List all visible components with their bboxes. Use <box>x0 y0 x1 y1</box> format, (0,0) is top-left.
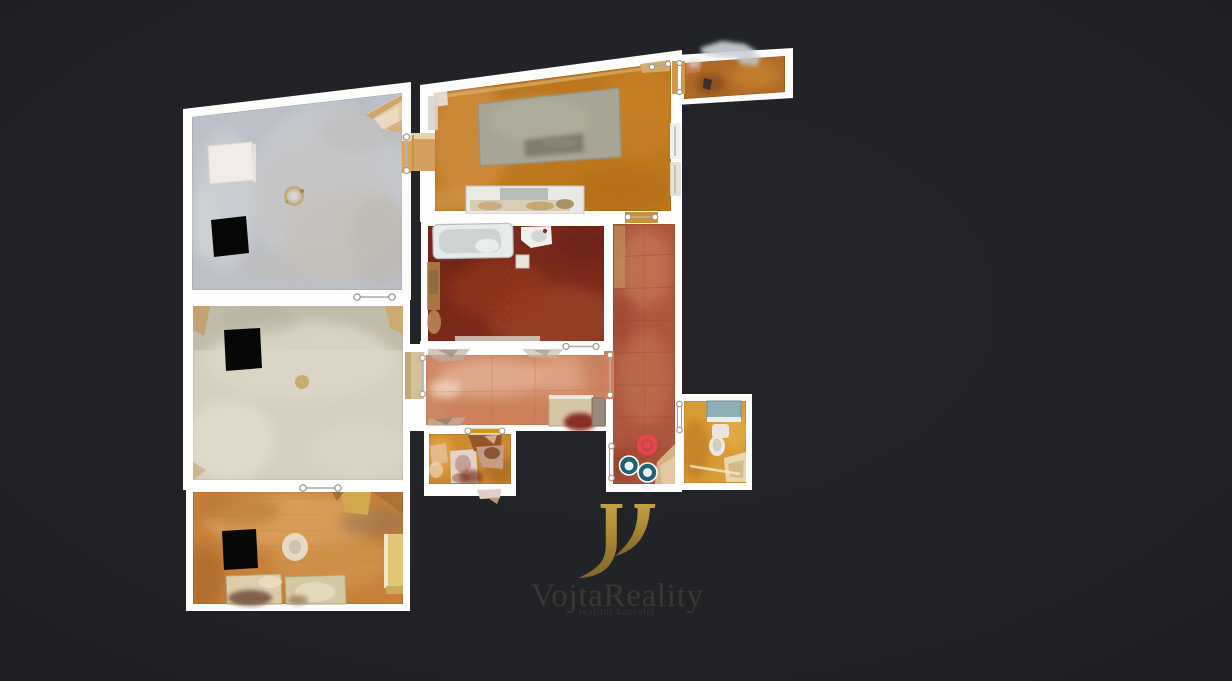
svg-text:realitní kancelář: realitní kancelář <box>579 607 656 618</box>
